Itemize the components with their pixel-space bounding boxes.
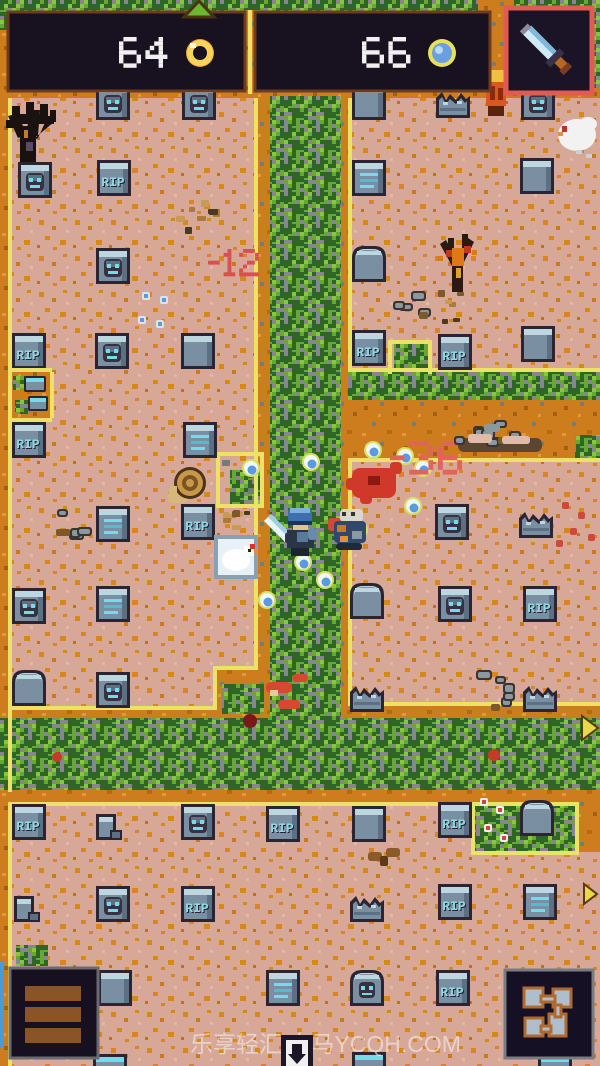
svg-text:乐享轻汇 白马YCQH.COM: 乐享轻汇 白马YCQH.COM — [190, 1031, 461, 1057]
